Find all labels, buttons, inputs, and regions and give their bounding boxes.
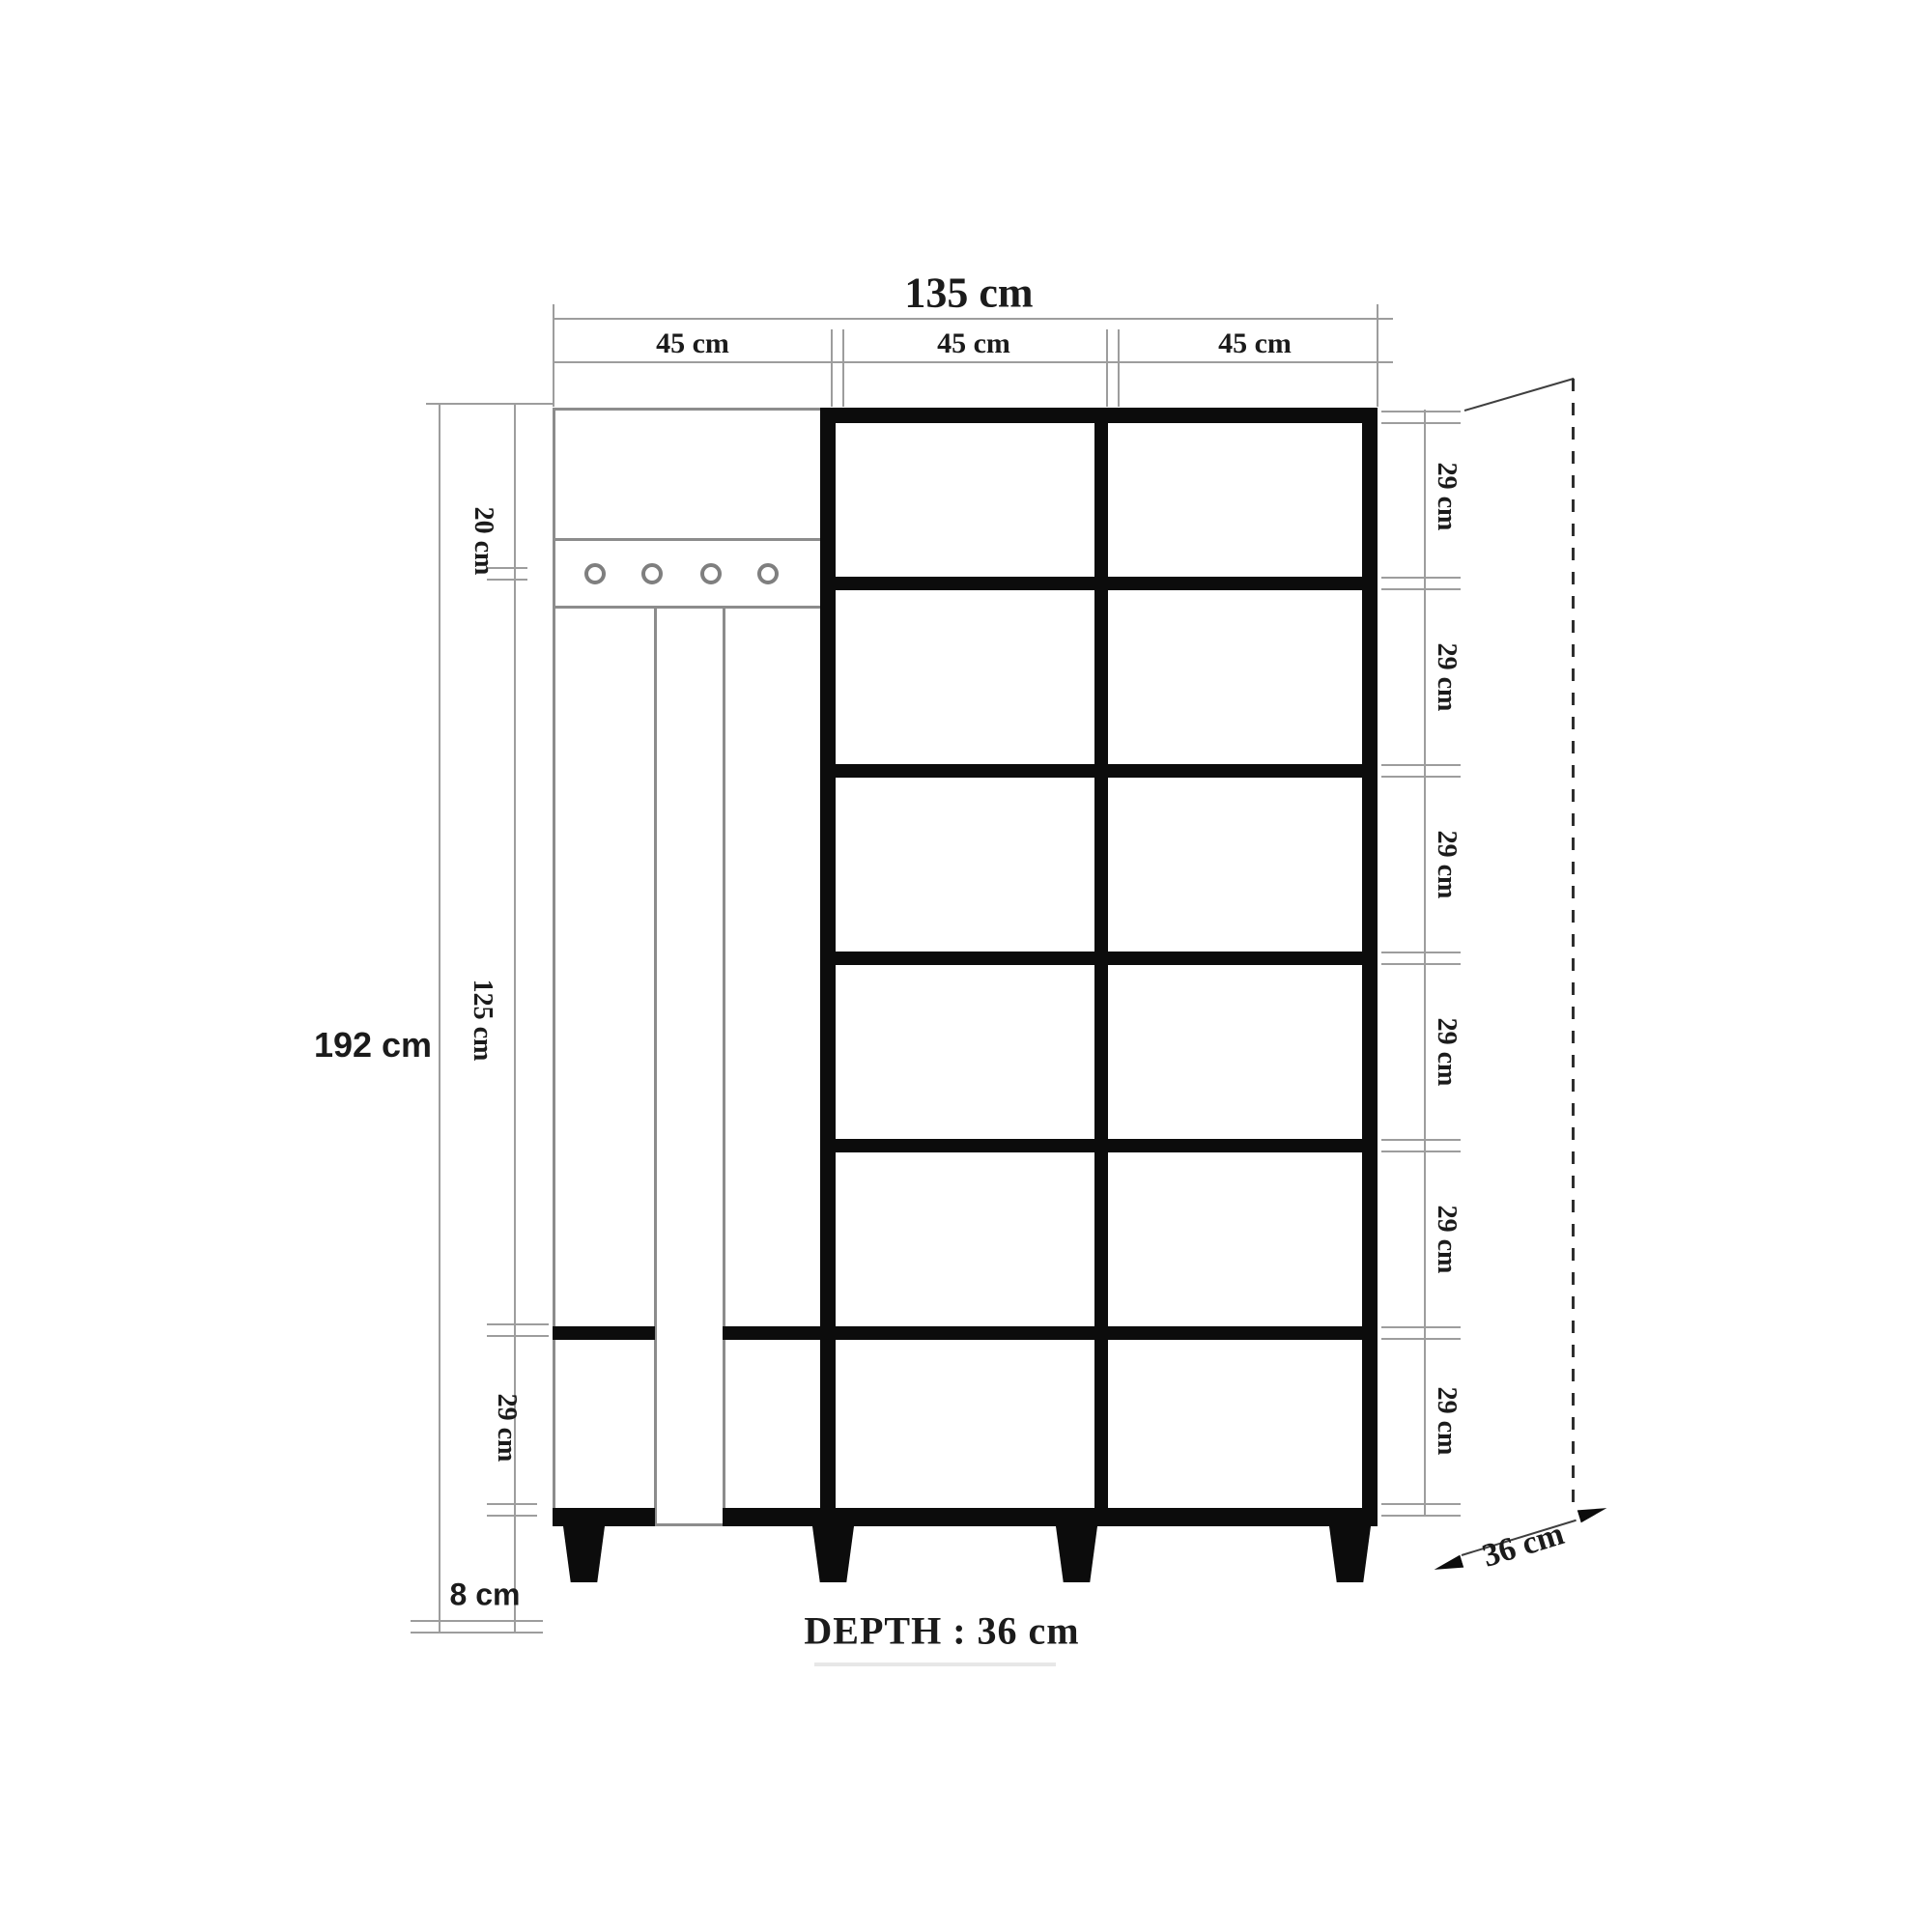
width-section-tick-b2 <box>1118 329 1120 407</box>
row-tick-2a <box>1381 764 1461 766</box>
row-tick-6b <box>1381 1515 1461 1517</box>
cabinet-leg-3 <box>1056 1526 1097 1582</box>
row-height-label-4: 29 cm <box>1431 1018 1462 1087</box>
height-seg-tick-low-2 <box>487 1515 537 1517</box>
row-tick-0b <box>1381 422 1461 424</box>
segment-label-20cm: 20 cm <box>468 507 498 576</box>
height-total-label: 192 cm <box>314 1025 432 1065</box>
row-tick-3a <box>1381 952 1461 953</box>
hook-knob-2 <box>641 563 663 584</box>
panel-shelf-band-right <box>723 1326 827 1340</box>
segment-label-29cm-left: 29 cm <box>491 1394 522 1463</box>
row-height-label-2: 29 cm <box>1431 643 1462 712</box>
height-seg-tick-mid-2 <box>487 1335 549 1337</box>
cabinet-leg-2 <box>812 1526 854 1582</box>
hook-knob-3 <box>700 563 722 584</box>
grid-row-line-2 <box>836 764 1362 778</box>
row-height-label-3: 29 cm <box>1431 831 1462 899</box>
row-tick-0a <box>1381 411 1461 412</box>
width-section-label-2: 45 cm <box>937 327 1010 360</box>
row-tick-6a <box>1381 1503 1461 1505</box>
shelf-grid-frame <box>820 408 1378 1526</box>
hook-knob-4 <box>757 563 779 584</box>
width-dim-end-tick-right <box>1377 304 1378 407</box>
depth-note: DEPTH : 36 cm <box>804 1608 1079 1654</box>
kick-band-left <box>553 1508 655 1526</box>
depth-size-label: 36 cm <box>1478 1516 1568 1575</box>
depth-arrow-left-icon <box>1432 1553 1464 1577</box>
height-dim-top-tick <box>426 403 553 405</box>
hook-rail-bottom-line <box>553 606 827 609</box>
depth-dashed-line <box>1572 379 1575 1513</box>
segment-label-8cm: 8 cm <box>450 1577 521 1613</box>
depth-projection-line <box>1464 378 1575 412</box>
segment-label-125cm: 125 cm <box>467 980 497 1062</box>
grid-row-line-4 <box>836 1139 1362 1152</box>
height-total-dim-line <box>439 403 440 1633</box>
hook-knob-1 <box>584 563 606 584</box>
width-total-label: 135 cm <box>904 269 1033 318</box>
grid-row-line-5 <box>836 1326 1362 1340</box>
width-section-label-3: 45 cm <box>1218 327 1292 360</box>
hook-rail-top-line <box>553 538 827 541</box>
width-section-tick-a2 <box>842 329 844 407</box>
row-tick-3b <box>1381 963 1461 965</box>
height-seg-tick-low-1 <box>487 1503 537 1505</box>
cabinet-leg-4 <box>1329 1526 1371 1582</box>
depth-arrow-right-icon <box>1577 1500 1609 1524</box>
grid-row-line-1 <box>836 577 1362 590</box>
panel-divider-line-left <box>654 608 657 1526</box>
row-tick-1b <box>1381 588 1461 590</box>
row-tick-4a <box>1381 1139 1461 1141</box>
height-dim-base-tick-1 <box>411 1620 543 1622</box>
width-section-label-1: 45 cm <box>656 327 729 360</box>
width-dim-end-tick-left <box>553 304 554 407</box>
height-dim-base-tick-2 <box>411 1632 543 1634</box>
height-seg-tick-hook-2 <box>487 579 527 581</box>
panel-shelf-band-left <box>553 1326 655 1340</box>
row-tick-1a <box>1381 577 1461 579</box>
width-sections-dim-line <box>554 361 1393 363</box>
depth-note-underline <box>814 1662 1056 1666</box>
height-seg-tick-mid-1 <box>487 1323 549 1325</box>
row-height-label-6: 29 cm <box>1431 1387 1462 1456</box>
row-height-label-5: 29 cm <box>1431 1206 1462 1274</box>
row-height-label-1: 29 cm <box>1431 463 1462 531</box>
kick-band-right <box>723 1508 1378 1526</box>
row-tick-5b <box>1381 1338 1461 1340</box>
width-section-tick-b1 <box>1106 329 1108 407</box>
furniture-dimension-diagram: 135 cm 45 cm 45 cm 45 cm 192 cm 20 cm 12… <box>0 0 1932 1932</box>
width-section-tick-a1 <box>831 329 833 407</box>
width-total-dim-line <box>554 318 1393 320</box>
row-tick-5a <box>1381 1326 1461 1328</box>
grid-row-line-3 <box>836 952 1362 965</box>
panel-divider-line-right <box>723 608 725 1526</box>
row-tick-4b <box>1381 1151 1461 1152</box>
row-tick-2b <box>1381 776 1461 778</box>
cabinet-leg-1 <box>563 1526 605 1582</box>
